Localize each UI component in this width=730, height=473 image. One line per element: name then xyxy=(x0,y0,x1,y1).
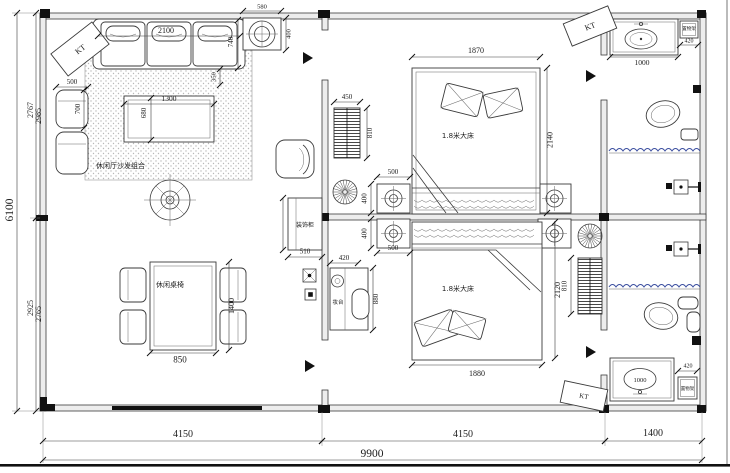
dim-ac2-height: 810 xyxy=(561,280,569,291)
dim-vanity2: 1000 xyxy=(634,377,647,384)
nightstand-L1 xyxy=(377,184,410,213)
dressing-table xyxy=(330,268,369,330)
dim-cassette-depth: 400 xyxy=(286,29,293,39)
dim-coffee-width: 1300 xyxy=(162,94,177,103)
dim-cabinet-width: 510 xyxy=(300,248,311,256)
dim-ac1-height: 810 xyxy=(366,127,374,138)
door-arrow-icon xyxy=(305,360,315,372)
shower-curtain-top xyxy=(609,149,700,152)
dim-bed1-length: 2140 xyxy=(546,132,555,148)
dim-sofa-depth: 740 xyxy=(227,36,235,47)
dining-label: 休闲桌椅 xyxy=(156,280,184,289)
dim-dresser-width: 420 xyxy=(339,254,350,262)
dim-dresser-length: 880 xyxy=(372,293,380,304)
door-arrow-icon xyxy=(303,52,313,64)
dim-total-height: 6100 xyxy=(4,198,16,221)
dresser-label: 妆台 xyxy=(332,298,344,306)
exhaust-fan-2 xyxy=(578,224,602,248)
side-armchair-2 xyxy=(56,132,88,174)
dim-sidechair-width: 500 xyxy=(67,78,78,86)
dim-shelf2: 420 xyxy=(684,364,693,370)
dim-sofa-width: 2100 xyxy=(158,26,174,35)
dim-living-width: 4150 xyxy=(173,429,193,440)
drain-icon xyxy=(692,336,701,345)
dim-coffee-depth: 680 xyxy=(140,107,148,118)
dim-ac1-width: 450 xyxy=(342,93,353,101)
switch-outlet-icon xyxy=(305,289,316,300)
sofa-area-label: 休闲厅沙发组合 xyxy=(96,161,145,170)
cabinet-label: 装饰柜 xyxy=(296,221,314,229)
ceiling-fan-living xyxy=(144,174,196,226)
ac-indoor-unit-2 xyxy=(578,258,602,314)
bed-1 xyxy=(412,68,540,214)
dim-cassette-width: 580 xyxy=(257,4,267,11)
bed-2 xyxy=(412,222,542,360)
shower-head-bottom xyxy=(666,242,701,256)
bed1-label: 1.8米大床 xyxy=(442,131,474,140)
shelf1-label: 置物架 xyxy=(682,25,696,32)
dim-bed1-width: 1870 xyxy=(468,46,484,55)
kt-unit-2: KT xyxy=(563,6,616,46)
tub-armchair xyxy=(276,140,314,178)
toilet-top xyxy=(643,97,698,140)
dim-nightstand2-depth: 400 xyxy=(361,228,369,239)
dim-sofa-gap: 350 xyxy=(211,72,218,82)
dim-nightstand-width: 500 xyxy=(388,168,399,176)
dim-nightstand2-width: 500 xyxy=(388,244,399,252)
dim-total-width: 9900 xyxy=(361,448,384,460)
exhaust-fan-1 xyxy=(333,180,357,204)
bed2-label: 1.8米大床 xyxy=(442,284,474,293)
dim-left-top-b: 2985 xyxy=(34,108,43,124)
ac-indoor-unit-1 xyxy=(334,108,360,158)
ceiling-ac-cassette xyxy=(243,18,281,50)
power-outlet-icon xyxy=(303,269,316,282)
door-arrow-icon xyxy=(586,70,596,82)
door-arrow-icon xyxy=(586,346,596,358)
dim-nightstand-depth: 400 xyxy=(361,193,369,204)
dim-dining-width: 850 xyxy=(173,355,187,365)
dim-bedroom-width: 4150 xyxy=(453,429,473,440)
shower-head-top xyxy=(666,180,701,194)
shelf2-label: 置物架 xyxy=(681,385,695,392)
floor-plan-canvas: KT KT KT 休闲厅沙发组合 休闲桌椅 装饰柜 妆台 1.8米大床 1.8米… xyxy=(0,0,730,473)
dim-dining-length: 1400 xyxy=(227,298,236,314)
floor-plan-page: KT KT KT 休闲厅沙发组合 休闲桌椅 装饰柜 妆台 1.8米大床 1.8米… xyxy=(0,0,730,473)
side-armchair-1 xyxy=(56,90,88,128)
shower-curtain-bottom xyxy=(609,285,700,288)
dining-table xyxy=(150,262,216,350)
dim-shelf1: 420 xyxy=(685,39,694,45)
nightstand-R2 xyxy=(538,219,571,248)
drain-icon xyxy=(693,85,701,93)
dim-bed2-width: 1880 xyxy=(469,369,485,378)
dim-sidechair-depth: 700 xyxy=(74,103,82,114)
dim-left-bottom-b: 2765 xyxy=(34,306,43,322)
dim-bath-width: 1400 xyxy=(643,428,663,439)
dim-vanity1: 1000 xyxy=(635,58,650,67)
toilet-bottom xyxy=(641,297,700,333)
nightstand-R1 xyxy=(538,184,571,213)
vanity-top xyxy=(610,19,678,55)
